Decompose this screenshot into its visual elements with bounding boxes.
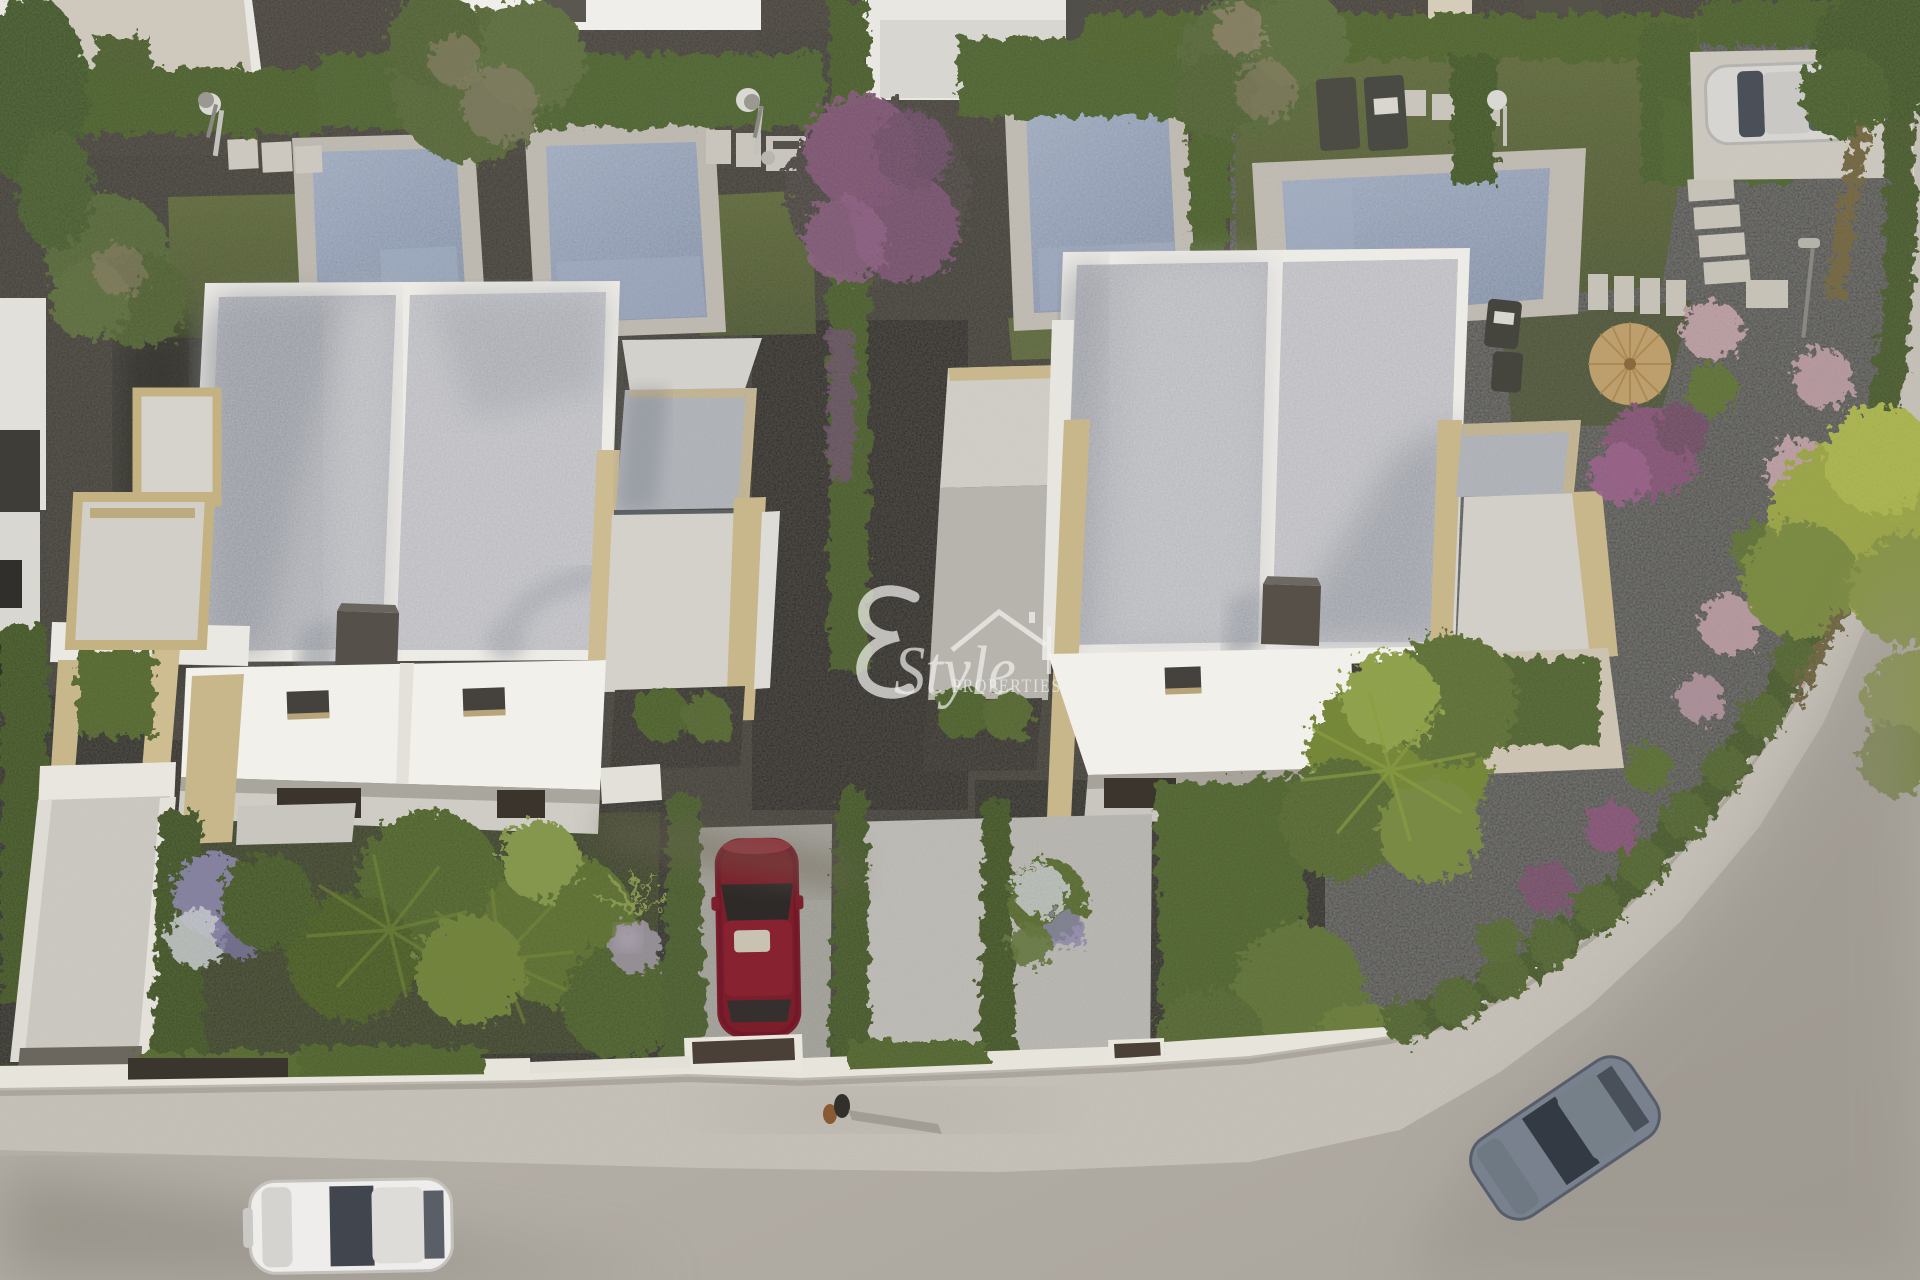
svg-text:PROPERTIES: PROPERTIES	[952, 676, 1062, 697]
svg-text:Style: Style	[894, 633, 1016, 710]
